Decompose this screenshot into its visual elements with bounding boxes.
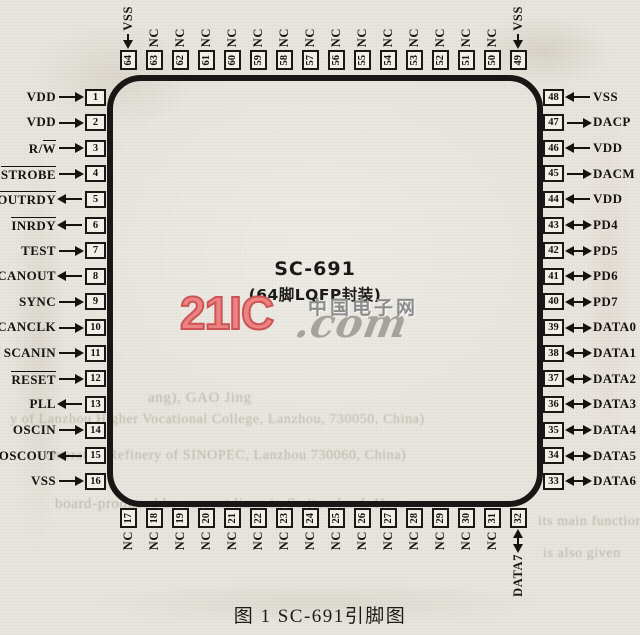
pin-row-8: SCANOUT8 [0,267,106,285]
pin-49-label: VSS [511,6,526,31]
pin-21-number: 21 [227,513,238,524]
pin-9-number: 9 [93,296,98,307]
pin-56-label: NC [329,28,344,47]
pin-59-number: 59 [253,55,264,66]
pin-57-label: NC [303,28,318,47]
pin-11-number: 11 [91,348,101,359]
pin-35-label: DATA4 [593,423,636,437]
pin-20-label: NC [199,531,214,550]
pin-row-48: 48VSS [543,88,640,106]
pin-48-label: VSS [593,90,618,104]
pin-47-box: 47 [543,114,564,131]
pin-31-box: 31 [484,508,501,528]
pin-39-number: 39 [548,322,559,333]
pin-59-label: NC [251,28,266,47]
pin-62-number: 62 [175,55,186,66]
pin-24-label: NC [303,531,318,550]
arrow-out-icon [59,403,82,405]
pin-17-box: 17 [120,508,137,528]
arrow-bidir-icon [567,224,590,226]
pin-55-box: 55 [354,50,371,70]
arrow-out-icon [567,122,590,124]
pin-61-label: NC [199,28,214,47]
pin-23-box: 23 [276,508,293,528]
arrow-in-icon [59,173,82,175]
pin-64-number: 64 [123,55,134,66]
pin-row-35: 35DATA4 [543,421,640,439]
pin-17-label: NC [121,531,136,550]
pin-55-number: 55 [357,55,368,66]
pin-52-box: 52 [432,50,449,70]
pin-60-number: 60 [227,55,238,66]
pin-14-label: OSCIN [13,423,56,437]
arrow-in-icon [59,352,82,354]
arrow-out-icon [59,198,82,200]
pin-row-44: 44VDD [543,190,640,208]
pin-43-number: 43 [548,220,559,231]
pin-row-10: SCANCLK10 [0,319,106,337]
arrow-in-icon [59,327,82,329]
pin-5-label: OUTRDY [0,191,56,207]
figure-caption: 图 1 SC-691引脚图 [0,601,640,628]
arrow-bidir-icon [567,378,590,380]
pin-21-box: 21 [224,508,241,528]
pin-1-label: VDD [27,90,56,104]
pin-33-label: DATA6 [593,474,636,488]
arrow-bidir-icon [567,480,590,482]
pin-22-box: 22 [250,508,267,528]
pin-22-label: NC [251,531,266,550]
pin-27-label: NC [381,531,396,550]
pin-26-label: NC [355,531,370,550]
arrow-bidir-icon [517,531,519,551]
pin-42-label: PD5 [593,244,618,258]
pin-35-box: 35 [543,422,564,439]
pin-63-label: NC [147,28,162,47]
pin-15-label: OSCOUT [0,449,56,463]
pin-1-box: 1 [85,89,106,106]
pin-25-box: 25 [328,508,345,528]
pin-39-label: DATA0 [593,320,636,334]
pin-18-label: NC [147,531,162,550]
pin-51-label: NC [459,28,474,47]
pin-58-label: NC [277,28,292,47]
pin-16-number: 16 [90,476,101,487]
pin-4-label: STROBE [1,166,56,182]
pin-18-box: 18 [146,508,163,528]
arrow-in-icon [59,378,82,380]
pin-27-number: 27 [383,513,394,524]
pin-8-number: 8 [93,271,98,282]
pin-11-box: 11 [85,345,106,362]
pin-col-64: VSS64 [118,0,138,70]
pin-54-label: NC [381,28,396,47]
pin-13-box: 13 [85,396,106,413]
pin-37-number: 37 [548,373,559,384]
pin-53-number: 53 [409,55,420,66]
pin-29-box: 29 [432,508,449,528]
pin-36-label: DATA3 [593,397,636,411]
pin-col-58: NC58 [274,0,294,70]
arrow-in-icon [517,34,519,47]
pin-54-number: 54 [383,55,394,66]
pin-64-box: 64 [120,50,137,70]
pin-col-54: NC54 [378,0,398,70]
pin-col-63: NC63 [144,0,164,70]
pin-61-box: 61 [198,50,215,70]
pin-row-42: 42PD5 [543,242,640,260]
pin-2-number: 2 [93,117,98,128]
pin-47-label: DACP [593,115,631,129]
pin-52-number: 52 [435,55,446,66]
pin-row-12: RESET12 [0,370,106,388]
arrow-in-icon [59,429,82,431]
pin-50-box: 50 [484,50,501,70]
pin-10-box: 10 [85,319,106,336]
arrow-in-icon [567,147,590,149]
pin-row-7: TEST7 [0,242,106,260]
arrow-in-icon [59,480,82,482]
pin-39-box: 39 [543,319,564,336]
pin-row-11: SCANIN11 [0,344,106,362]
pin-14-box: 14 [85,422,106,439]
pin-38-label: DATA1 [593,346,636,360]
pin-row-36: 36DATA3 [543,395,640,413]
pin-31-label: NC [485,531,500,550]
pin-2-label: VDD [27,115,56,129]
arrow-bidir-icon [567,250,590,252]
pin-7-box: 7 [85,242,106,259]
pin-59-box: 59 [250,50,267,70]
pin-60-box: 60 [224,50,241,70]
pin-8-label: SCANOUT [0,269,56,283]
pin-row-15: OSCOUT15 [0,447,106,465]
pin-19-box: 19 [172,508,189,528]
pin-14-number: 14 [90,425,101,436]
arrow-in-icon [59,250,82,252]
pin-11-label: SCANIN [4,346,56,360]
pin-33-number: 33 [548,476,559,487]
pin-30-number: 30 [461,513,472,524]
pin-6-number: 6 [93,220,98,231]
pin-41-label: PD6 [593,269,618,283]
pin-row-40: 40PD7 [543,293,640,311]
pin-34-label: DATA5 [593,449,636,463]
pin-18-number: 18 [149,513,160,524]
pin-36-box: 36 [543,396,564,413]
pin-row-14: OSCIN14 [0,421,106,439]
pin-13-number: 13 [90,399,101,410]
pin-51-number: 51 [461,55,472,66]
pin-10-number: 10 [90,322,101,333]
pin-row-1: VDD1 [0,88,106,106]
pin-9-box: 9 [85,293,106,310]
pin-15-number: 15 [90,450,101,461]
pin-45-box: 45 [543,165,564,182]
pin-4-box: 4 [85,165,106,182]
pin-36-number: 36 [548,399,559,410]
pin-13-label: PLL [30,397,56,411]
pin-21-label: NC [225,531,240,550]
pin-col-50: NC50 [482,0,502,70]
pin-diagram-page: ang), GAO Jingy of Lanzhou Higher Vocati… [0,0,640,635]
pin-12-box: 12 [85,370,106,387]
pin-row-41: 41PD6 [543,267,640,285]
arrow-in-icon [127,34,129,47]
pin-29-number: 29 [435,513,446,524]
pin-32-label: DATA7 [511,554,526,597]
pin-31-number: 31 [487,513,498,524]
pin-12-label: RESET [11,371,56,387]
pin-24-box: 24 [302,508,319,528]
pin-19-number: 19 [175,513,186,524]
pin-37-label: DATA2 [593,372,636,386]
pin-16-label: VSS [31,474,56,488]
pin-30-box: 30 [458,508,475,528]
pin-row-46: 46VDD [543,139,640,157]
arrow-in-icon [567,198,590,200]
pin-61-number: 61 [201,55,212,66]
pin-col-55: NC55 [352,0,372,70]
pin-47-number: 47 [548,117,559,128]
pin-row-16: VSS16 [0,472,106,490]
pin-row-6: INRDY6 [0,216,106,234]
pin-24-number: 24 [305,513,316,524]
pin-41-box: 41 [543,268,564,285]
pin-col-62: NC62 [170,0,190,70]
pin-row-37: 37DATA2 [543,370,640,388]
arrow-out-icon [59,275,82,277]
pin-58-box: 58 [276,50,293,70]
pin-54-box: 54 [380,50,397,70]
pin-10-label: SCANCLK [0,320,56,334]
pin-48-number: 48 [548,92,559,103]
pin-63-number: 63 [149,55,160,66]
pin-53-box: 53 [406,50,423,70]
arrow-in-icon [567,96,590,98]
pin-38-box: 38 [543,345,564,362]
arrow-bidir-icon [567,327,590,329]
pin-26-box: 26 [354,508,371,528]
pin-50-label: NC [485,28,500,47]
pin-43-label: PD4 [593,218,618,232]
pin-34-box: 34 [543,447,564,464]
pin-5-number: 5 [93,194,98,205]
arrow-out-icon [59,455,82,457]
pin-row-39: 39DATA0 [543,319,640,337]
pin-row-43: 43PD4 [543,216,640,234]
pin-col-61: NC61 [196,0,216,70]
pin-15-box: 15 [85,447,106,464]
pin-35-number: 35 [548,425,559,436]
pin-45-label: DACM [593,167,635,181]
pin-layer: VDD1VDD2R/W3STROBE4OUTRDY5INRDY6TEST7SCA… [0,0,640,635]
pin-4-number: 4 [93,168,98,179]
arrow-out-icon [59,224,82,226]
pin-53-label: NC [407,28,422,47]
pin-col-51: NC51 [456,0,476,70]
pin-28-number: 28 [409,513,420,524]
pin-49-box: 49 [510,50,527,70]
pin-row-4: STROBE4 [0,165,106,183]
pin-7-number: 7 [93,245,98,256]
pin-3-box: 3 [85,140,106,157]
pin-19-label: NC [173,531,188,550]
pin-col-53: NC53 [404,0,424,70]
pin-col-57: NC57 [300,0,320,70]
pin-57-box: 57 [302,50,319,70]
pin-28-box: 28 [406,508,423,528]
pin-2-box: 2 [85,114,106,131]
pin-56-box: 56 [328,50,345,70]
pin-46-label: VDD [593,141,622,155]
pin-40-number: 40 [548,296,559,307]
pin-23-label: NC [277,531,292,550]
arrow-in-icon [59,122,82,124]
pin-25-label: NC [329,531,344,550]
pin-40-label: PD7 [593,295,618,309]
pin-col-60: NC60 [222,0,242,70]
pin-6-label: INRDY [11,217,56,233]
pin-46-box: 46 [543,140,564,157]
pin-58-number: 58 [279,55,290,66]
arrow-in-icon [59,147,82,149]
pin-44-box: 44 [543,191,564,208]
pin-1-number: 1 [93,92,98,103]
pin-43-box: 43 [543,217,564,234]
pin-60-label: NC [225,28,240,47]
pin-3-number: 3 [93,143,98,154]
pin-52-label: NC [433,28,448,47]
pin-55-label: NC [355,28,370,47]
pin-32-number: 32 [513,513,524,524]
pin-23-number: 23 [279,513,290,524]
pin-3-label: R/W [29,140,56,156]
pin-28-label: NC [407,531,422,550]
pin-26-number: 26 [357,513,368,524]
arrow-bidir-icon [567,301,590,303]
pin-29-label: NC [433,531,448,550]
arrow-bidir-icon [567,429,590,431]
arrow-bidir-icon [567,403,590,405]
pin-49-number: 49 [513,55,524,66]
pin-col-56: NC56 [326,0,346,70]
arrow-bidir-icon [567,275,590,277]
pin-12-number: 12 [90,373,101,384]
pin-row-47: 47DACP [543,114,640,132]
pin-16-box: 16 [85,473,106,490]
pin-34-number: 34 [548,450,559,461]
pin-row-3: R/W3 [0,139,106,157]
pin-63-box: 63 [146,50,163,70]
pin-44-number: 44 [548,194,559,205]
pin-row-38: 38DATA1 [543,344,640,362]
pin-20-number: 20 [201,513,212,524]
pin-col-52: NC52 [430,0,450,70]
pin-row-9: SYNC9 [0,293,106,311]
pin-48-box: 48 [543,89,564,106]
pin-62-box: 62 [172,50,189,70]
pin-40-box: 40 [543,293,564,310]
pin-9-label: SYNC [19,295,56,309]
pin-32-box: 32 [510,508,527,528]
pin-41-number: 41 [548,271,559,282]
pin-5-box: 5 [85,191,106,208]
pin-col-59: NC59 [248,0,268,70]
pin-45-number: 45 [548,168,559,179]
pin-56-number: 56 [331,55,342,66]
pin-30-label: NC [459,531,474,550]
arrow-out-icon [567,173,590,175]
pin-row-45: 45DACM [543,165,640,183]
pin-row-33: 33DATA6 [543,472,640,490]
pin-50-number: 50 [487,55,498,66]
arrow-bidir-icon [567,455,590,457]
pin-7-label: TEST [21,244,56,258]
pin-25-number: 25 [331,513,342,524]
pin-37-box: 37 [543,370,564,387]
pin-38-number: 38 [548,348,559,359]
pin-51-box: 51 [458,50,475,70]
arrow-in-icon [59,96,82,98]
pin-33-box: 33 [543,473,564,490]
pin-17-number: 17 [123,513,134,524]
pin-46-number: 46 [548,143,559,154]
pin-27-box: 27 [380,508,397,528]
arrow-bidir-icon [567,352,590,354]
pin-row-2: VDD2 [0,114,106,132]
pin-64-label: VSS [121,6,136,31]
pin-row-13: PLL13 [0,395,106,413]
pin-22-number: 22 [253,513,264,524]
pin-42-box: 42 [543,242,564,259]
pin-20-box: 20 [198,508,215,528]
pin-row-5: OUTRDY5 [0,190,106,208]
pin-col-49: VSS49 [508,0,528,70]
pin-6-box: 6 [85,217,106,234]
pin-62-label: NC [173,28,188,47]
pin-row-34: 34DATA5 [543,447,640,465]
pin-57-number: 57 [305,55,316,66]
pin-8-box: 8 [85,268,106,285]
pin-44-label: VDD [593,192,622,206]
pin-42-number: 42 [548,245,559,256]
arrow-in-icon [59,301,82,303]
